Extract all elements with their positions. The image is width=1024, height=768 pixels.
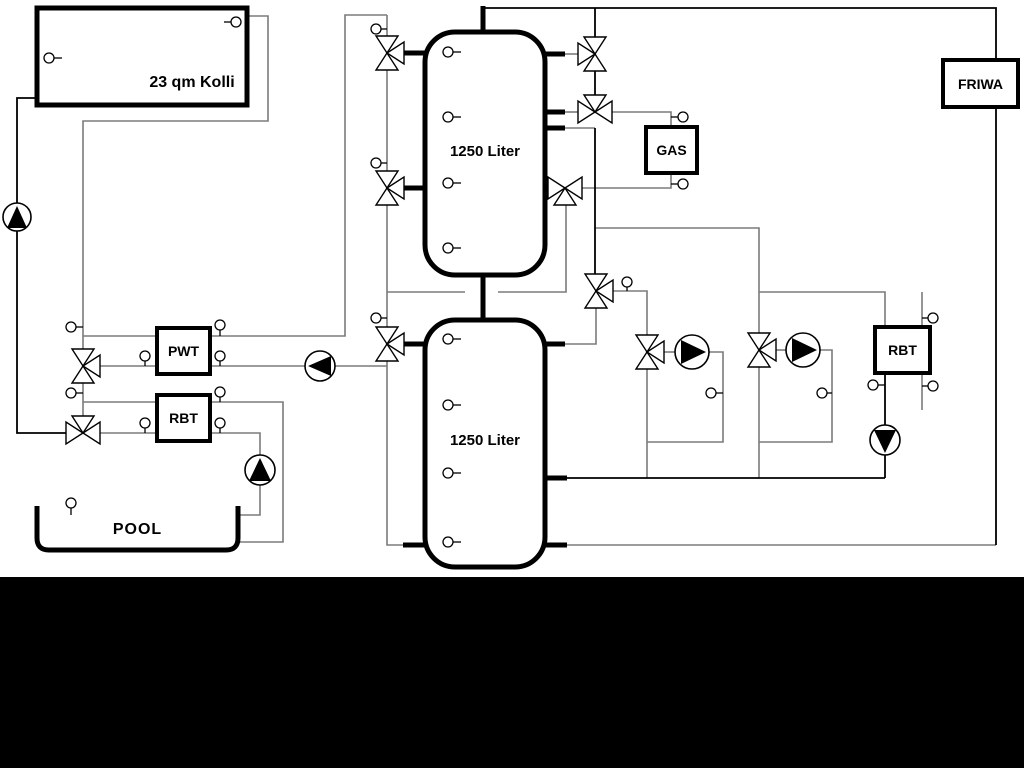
three-way-valve-icon: [548, 177, 582, 205]
three-way-valve-icon: [748, 333, 776, 367]
pipe-rbt-to-pool-supply: [100, 433, 260, 515]
temperature-sensor-icon: [671, 179, 688, 189]
temperature-sensor-icon: [66, 498, 76, 515]
temperature-sensor-icon: [922, 313, 938, 323]
pwt-label: PWT: [157, 344, 210, 358]
gas-label: GAS: [646, 143, 697, 157]
temperature-sensor-icon: [706, 388, 723, 398]
pool-label: POOL: [37, 522, 238, 538]
piping-diagram: [0, 0, 1024, 768]
temperature-sensor-icon: [215, 351, 225, 366]
three-way-valve-icon: [72, 349, 100, 383]
friwa-label: FRIWA: [943, 77, 1018, 91]
temperature-sensor-icon: [622, 277, 632, 291]
pipe-rbt-right-supply: [759, 292, 885, 327]
collector-label: 23 qm Kolli: [130, 75, 254, 91]
pump-up-icon: [3, 203, 31, 231]
rbt-right-label: RBT: [875, 343, 930, 357]
pump-up-icon: [245, 455, 275, 485]
pump-right-icon: [786, 333, 820, 367]
pump-right-icon: [675, 335, 709, 369]
three-way-valve-icon: [66, 416, 100, 444]
pipe-top-friwa: [483, 8, 996, 545]
pump-left-icon: [305, 351, 335, 381]
schematic-canvas: 23 qm Kolli 1250 Liter 1250 Liter GAS FR…: [0, 0, 1024, 768]
temperature-sensor-icon: [140, 418, 150, 433]
temperature-sensor-icon: [671, 112, 688, 122]
pipe-group1-supply: [613, 291, 647, 478]
vessels: [37, 8, 1018, 567]
rbt-left-label: RBT: [157, 411, 210, 425]
bottom-black-bar: [0, 577, 1024, 768]
temperature-sensor-icon: [922, 381, 938, 391]
temperature-sensor-icon: [371, 24, 387, 34]
temperature-sensor-icon: [215, 418, 225, 433]
pipe-gas-supply: [612, 112, 671, 127]
temperature-sensor-icon: [66, 388, 83, 398]
tank2-label: 1250 Liter: [425, 433, 545, 448]
pipe-left-valve-chain: [387, 15, 403, 545]
temperature-sensor-icon: [215, 387, 225, 402]
temperature-sensor-icon: [371, 158, 387, 168]
three-way-valve-icon: [376, 327, 404, 361]
three-way-valve-icon: [376, 171, 404, 205]
temperature-sensor-icon: [66, 322, 83, 332]
pump-down-icon: [870, 425, 900, 455]
temperature-sensor-icon: [140, 351, 150, 366]
tank1-label: 1250 Liter: [425, 144, 545, 159]
temperature-sensor-icon: [868, 380, 885, 390]
three-way-valve-icon: [578, 95, 612, 123]
three-way-valve-icon: [585, 274, 613, 308]
three-way-valve-icon: [636, 335, 664, 369]
temperature-sensor-icon: [215, 320, 225, 336]
temperature-sensor-icon: [817, 388, 832, 398]
three-way-valve-icon: [376, 36, 404, 70]
three-way-valve-icon: [578, 37, 606, 71]
pipe-collector-supply: [17, 98, 66, 433]
temperature-sensor-icon: [371, 313, 387, 323]
pipe-v7-to-tank2: [565, 307, 596, 344]
